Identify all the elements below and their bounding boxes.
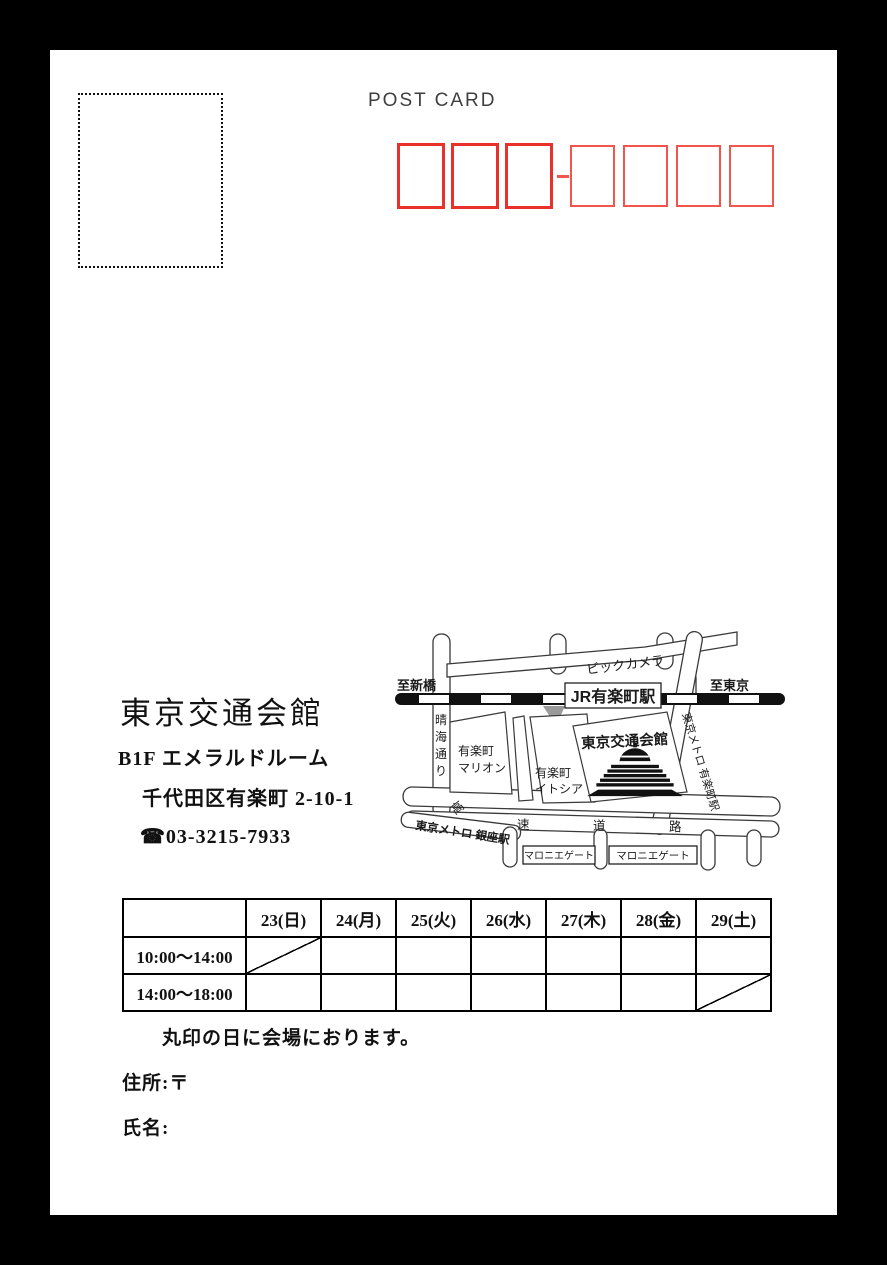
postal-code-box-1 bbox=[397, 143, 445, 209]
svg-text:路: 路 bbox=[669, 819, 682, 834]
schedule-header-empty bbox=[123, 899, 246, 937]
schedule-cell-r0c3 bbox=[396, 937, 471, 974]
svg-text:マロニエゲート: マロニエゲート bbox=[524, 850, 594, 862]
postal-code-box-5 bbox=[623, 145, 668, 207]
schedule-cell-r1c2 bbox=[321, 974, 396, 1011]
schedule-cell-r1c6 bbox=[621, 974, 696, 1011]
svg-text:通: 通 bbox=[435, 747, 447, 761]
svg-text:速: 速 bbox=[517, 818, 530, 832]
name-field-label: 氏名: bbox=[122, 1113, 169, 1140]
schedule-cell-r0c7 bbox=[696, 937, 771, 974]
venue-phone: ☎03-3215-7933 bbox=[140, 824, 291, 849]
schedule-header-day-25: 25(火) bbox=[396, 899, 471, 937]
venue-name: 東京交通会館 bbox=[120, 688, 324, 733]
schedule-time-morning: 10:00〜14:00 bbox=[123, 937, 246, 974]
jr-station-label: JR有楽町駅 bbox=[571, 687, 656, 706]
schedule-header-day-24: 24(月) bbox=[321, 899, 396, 937]
jr-station-label-box: JR有楽町駅 bbox=[565, 683, 661, 708]
svg-text:マロニエゲート: マロニエゲート bbox=[616, 850, 690, 862]
schedule-header-day-26: 26(水) bbox=[471, 899, 546, 937]
schedule-cell-r1c5 bbox=[546, 974, 621, 1011]
schedule-header-day-28: 28(金) bbox=[621, 899, 696, 937]
marronnier-gate-box-1: マロニエゲート bbox=[523, 846, 595, 864]
schedule-header-day-27: 27(木) bbox=[546, 899, 621, 937]
postcard-page: POST CARD 東京交通会館 B1F エメラルドルーム 千代田区有楽町 2-… bbox=[50, 50, 837, 1215]
postal-code-box-6 bbox=[676, 145, 721, 207]
postal-code-box-3 bbox=[505, 143, 553, 209]
svg-text:マリオン: マリオン bbox=[458, 761, 506, 775]
access-map: JR有楽町駅 至新橋 至東京 ビックカメラ 晴 海 通 り 有楽町 マリオン 有… bbox=[395, 622, 785, 888]
venue-address: 千代田区有楽町 2-10-1 bbox=[142, 782, 354, 811]
schedule-cell-r1c4 bbox=[471, 974, 546, 1011]
schedule-cell-r1c1 bbox=[246, 974, 321, 1011]
schedule-header-day-29: 29(土) bbox=[696, 899, 771, 937]
schedule-table: 23(日) 24(月) 25(火) 26(水) 27(木) 28(金) 29(土… bbox=[122, 898, 772, 1012]
schedule-cell-r0c5 bbox=[546, 937, 621, 974]
schedule-time-afternoon: 14:00〜18:00 bbox=[123, 974, 246, 1011]
postcard-title: POST CARD bbox=[368, 90, 497, 112]
schedule-cell-r0c6 bbox=[621, 937, 696, 974]
schedule-cell-r0c1 bbox=[246, 937, 321, 974]
postal-code-boxes bbox=[397, 143, 774, 209]
marronnier-gate-box-2: マロニエゲート bbox=[609, 846, 697, 864]
to-tokyo-label: 至東京 bbox=[710, 678, 749, 693]
svg-text:有楽町: 有楽町 bbox=[535, 766, 571, 780]
schedule-note: 丸印の日に会場におります。 bbox=[162, 1023, 420, 1050]
svg-text:晴: 晴 bbox=[435, 713, 447, 727]
postal-code-box-4 bbox=[570, 145, 615, 207]
svg-text:イトシア: イトシア bbox=[535, 782, 583, 796]
schedule-cell-r0c2 bbox=[321, 937, 396, 974]
schedule-cell-r1c7 bbox=[696, 974, 771, 1011]
postal-code-box-2 bbox=[451, 143, 499, 209]
svg-text:有楽町: 有楽町 bbox=[458, 744, 494, 758]
schedule-header-row: 23(日) 24(月) 25(火) 26(水) 27(木) 28(金) 29(土… bbox=[123, 899, 771, 937]
postal-code-hyphen bbox=[557, 175, 569, 178]
schedule-cell-r1c3 bbox=[396, 974, 471, 1011]
to-shimbashi-label: 至新橋 bbox=[397, 678, 437, 693]
svg-text:道: 道 bbox=[593, 819, 606, 833]
svg-text:海: 海 bbox=[435, 729, 447, 744]
schedule-row-afternoon: 14:00〜18:00 bbox=[123, 974, 771, 1011]
address-field-label: 住所:〒 bbox=[122, 1068, 189, 1095]
schedule-cell-r0c4 bbox=[471, 937, 546, 974]
venue-room: B1F エメラルドルーム bbox=[118, 742, 329, 771]
stamp-placement-box bbox=[78, 93, 223, 268]
svg-text:り: り bbox=[435, 764, 447, 778]
schedule-header-day-23: 23(日) bbox=[246, 899, 321, 937]
postal-code-box-7 bbox=[729, 145, 774, 207]
schedule-row-morning: 10:00〜14:00 bbox=[123, 937, 771, 974]
